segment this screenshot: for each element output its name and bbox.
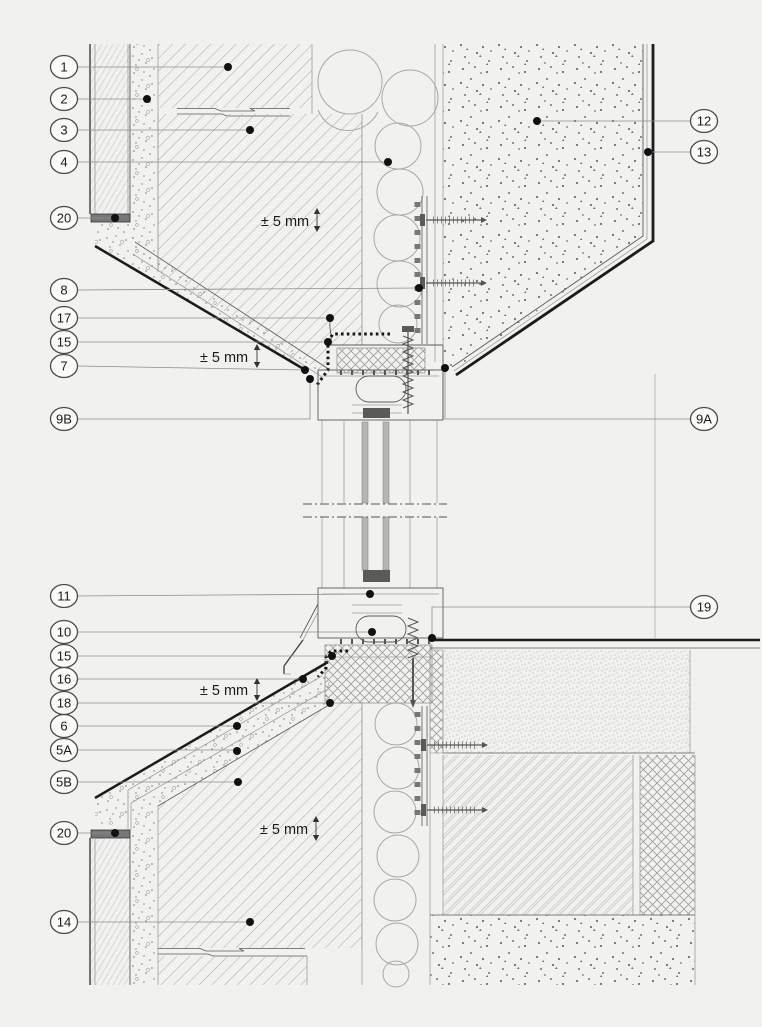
tolerance-text: ± 5 mm	[261, 214, 309, 230]
svg-text:17: 17	[57, 311, 71, 326]
svg-text:12: 12	[697, 114, 711, 129]
edge-insulation-strip	[430, 650, 443, 753]
svg-text:2: 2	[60, 92, 67, 107]
callout-2: 2	[51, 88, 78, 111]
callout-8: 8	[51, 279, 78, 302]
edge-profile-bottom	[91, 830, 130, 838]
callout-20-bottom: 20	[51, 822, 78, 845]
plaster-layer-top	[90, 44, 130, 214]
callout-3: 3	[51, 119, 78, 142]
svg-text:15: 15	[57, 649, 71, 664]
svg-text:20: 20	[57, 826, 71, 841]
tolerance-text: ± 5 mm	[200, 350, 248, 366]
svg-text:14: 14	[57, 915, 71, 930]
insulation-serpentine-bottom	[374, 703, 419, 987]
render-strip-bottom	[131, 806, 158, 985]
screed-layer	[443, 650, 690, 753]
svg-text:10: 10	[57, 625, 71, 640]
callout-9B: 9B	[51, 408, 78, 431]
masonry-top	[158, 44, 312, 108]
svg-text:20: 20	[57, 211, 71, 226]
svg-text:1: 1	[60, 60, 67, 75]
svg-text:6: 6	[60, 719, 67, 734]
svg-text:16: 16	[57, 672, 71, 687]
render-strip-top	[131, 44, 158, 272]
glazing-shoe-head	[363, 408, 390, 418]
callout-17: 17	[51, 307, 78, 330]
concrete-slab	[430, 915, 695, 985]
svg-text:4: 4	[60, 155, 67, 170]
callout-9A: 9A	[691, 408, 718, 431]
callout-20-top: 20	[51, 207, 78, 230]
head-joint-block	[337, 348, 425, 373]
concrete-panel-top	[443, 44, 643, 369]
svg-text:11: 11	[57, 589, 71, 604]
svg-text:7: 7	[60, 359, 67, 374]
wall-top-section	[90, 44, 653, 377]
callout-5B: 5B	[51, 771, 78, 794]
sill-flashing	[284, 604, 318, 674]
svg-text:3: 3	[60, 123, 67, 138]
callout-18: 18	[51, 692, 78, 715]
callout-11: 11	[51, 585, 78, 608]
callout-12: 12	[691, 110, 718, 133]
svg-text:5B: 5B	[56, 775, 72, 790]
svg-text:18: 18	[57, 696, 71, 711]
floor-fill-block	[640, 755, 695, 915]
svg-text:9A: 9A	[696, 412, 712, 427]
tolerance-note: ± 5 mm	[200, 344, 260, 368]
callout-4: 4	[51, 151, 78, 174]
callout-14: 14	[51, 911, 78, 934]
section-break-lines	[303, 504, 447, 517]
callout-19: 19	[691, 596, 718, 619]
callout-15-bottom: 15	[51, 645, 78, 668]
floor-insulation	[443, 755, 633, 915]
svg-text:13: 13	[697, 145, 711, 160]
window-assembly	[284, 326, 447, 708]
glazing-shoe-sill	[363, 570, 390, 582]
tolerance-note: ± 5 mm	[200, 678, 260, 701]
svg-text:5A: 5A	[56, 743, 72, 758]
callout-5A: 5A	[51, 739, 78, 762]
masonry-below-joint	[158, 956, 307, 985]
callout-13: 13	[691, 141, 718, 164]
tolerance-text: ± 5 mm	[260, 822, 308, 838]
floor-assembly	[430, 374, 760, 985]
callout-7: 7	[51, 355, 78, 378]
svg-text:19: 19	[697, 600, 711, 615]
callout-10: 10	[51, 621, 78, 644]
callout-1: 1	[51, 56, 78, 79]
svg-text:9B: 9B	[56, 412, 72, 427]
callout-15-top: 15	[51, 331, 78, 354]
tolerance-text: ± 5 mm	[200, 683, 248, 699]
detail-drawing: ± 5 mm ± 5 mm ± 5 mm ± 5 mm 1 2 3 4 20 8…	[0, 0, 762, 1027]
callout-6: 6	[51, 715, 78, 738]
callout-16: 16	[51, 668, 78, 691]
svg-text:8: 8	[60, 283, 67, 298]
svg-text:15: 15	[57, 335, 71, 350]
plaster-layer-bottom	[90, 838, 130, 985]
